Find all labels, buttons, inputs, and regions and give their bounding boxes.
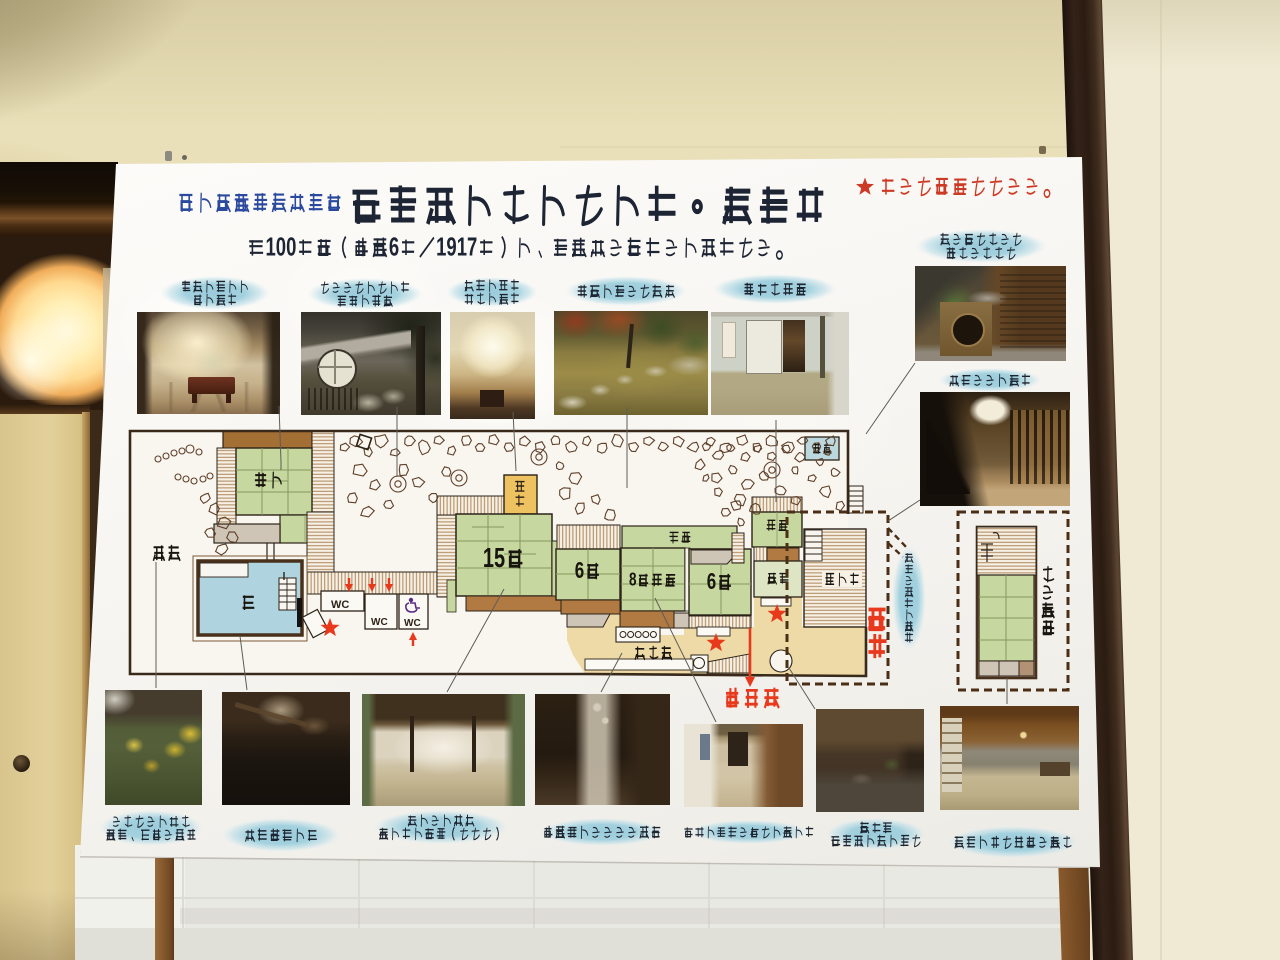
svg-text:9: 9	[446, 233, 456, 262]
svg-text:WC: WC	[404, 618, 421, 629]
svg-text:1: 1	[266, 233, 276, 262]
svg-text:6: 6	[707, 568, 716, 594]
svg-text:7: 7	[467, 233, 477, 262]
svg-text:8: 8	[629, 570, 637, 591]
svg-text:0: 0	[286, 233, 296, 262]
svg-text:5: 5	[494, 543, 505, 574]
svg-text:WC: WC	[331, 599, 349, 611]
svg-text:6: 6	[389, 233, 399, 262]
svg-text:1: 1	[457, 233, 467, 262]
svg-text:0: 0	[276, 233, 286, 262]
svg-text:WC: WC	[371, 617, 388, 628]
svg-text:6: 6	[575, 557, 584, 583]
svg-text:1: 1	[436, 233, 446, 262]
svg-text:1: 1	[483, 543, 494, 574]
